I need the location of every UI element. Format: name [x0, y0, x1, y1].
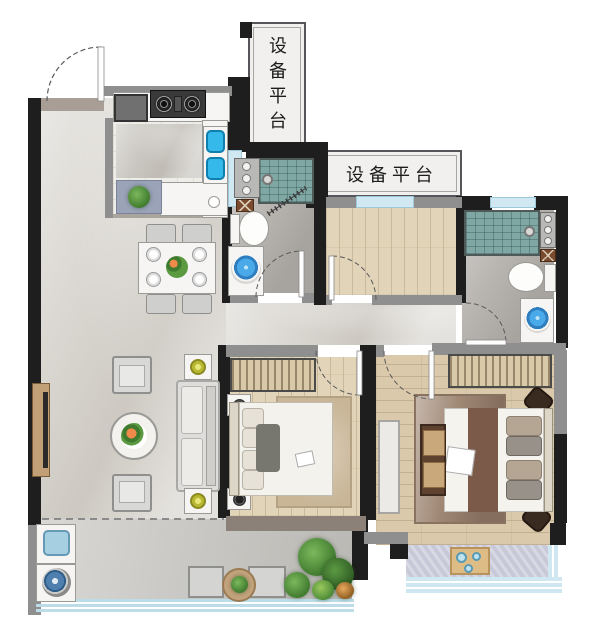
- bench-cushion: [423, 430, 445, 456]
- wall-bath-study: [314, 205, 326, 305]
- dining-centerpiece-flowers: [166, 256, 188, 278]
- bay-window-glass-side: [548, 545, 552, 577]
- balcony-plant: [312, 580, 334, 600]
- dinner-plate: [192, 272, 207, 287]
- master-wardrobe: [448, 354, 552, 388]
- wall-entry-threshold: [41, 98, 104, 111]
- bed-pillow: [242, 470, 264, 490]
- wall-bedroom-bottom: [226, 516, 366, 531]
- shelf-basket: [242, 174, 251, 183]
- entry-door-arc: [47, 47, 101, 101]
- balcony-plant: [284, 572, 310, 598]
- bedroom-wardrobe: [230, 358, 316, 392]
- dining-chair: [146, 224, 176, 244]
- sofa-back-cushions: [206, 386, 216, 486]
- wall-below-platform: [246, 142, 308, 158]
- master-floor-drain: [540, 249, 556, 262]
- floor-lamp: [190, 493, 206, 509]
- balcony-stool: [188, 566, 224, 598]
- master-bed-pillow: [506, 480, 542, 500]
- bench-cushion: [423, 462, 445, 488]
- wall-study-bottom-right: [372, 295, 462, 305]
- bed-throw-blanket: [256, 424, 280, 472]
- master-bathroom-window: [490, 197, 536, 208]
- bay-window-glass: [406, 577, 562, 581]
- dining-chair: [182, 294, 212, 314]
- wall-master-entry: [376, 345, 384, 357]
- washing-machine-door: [42, 568, 71, 597]
- wall-bay-right-corner: [550, 523, 566, 545]
- study-window: [356, 196, 414, 208]
- dresser: [378, 420, 400, 514]
- master-shower-head: [524, 226, 535, 237]
- teacup: [472, 552, 481, 561]
- stove-burner: [182, 94, 202, 114]
- dinner-plate: [192, 247, 207, 262]
- tv: [43, 392, 48, 468]
- sofa-seat-cushion: [181, 386, 203, 434]
- master-toilet-tank: [544, 264, 556, 292]
- dinner-plate: [146, 272, 161, 287]
- kitchen-plant: [128, 186, 150, 208]
- sofa-seat-cushion: [181, 438, 203, 486]
- teacup: [456, 552, 467, 563]
- shelf-basket: [544, 215, 552, 223]
- master-bed-pillow: [506, 416, 542, 436]
- toilet-bowl: [239, 211, 269, 246]
- coffee-table-flowers: [121, 423, 147, 449]
- bay-window-glass: [406, 589, 562, 593]
- floor-plan: 设备平台 设备平台: [0, 0, 600, 641]
- dinner-plate: [146, 247, 161, 262]
- stove-burner: [154, 94, 174, 114]
- wall-right-upper: [556, 196, 568, 348]
- kitchen-sink-basin: [206, 157, 225, 180]
- master-bed-headboard: [544, 408, 553, 512]
- teacup: [464, 564, 473, 573]
- wall-study-bottom-left: [326, 295, 332, 305]
- wall-right-window-band: [554, 350, 567, 434]
- kitchen-sink-basin: [206, 130, 225, 153]
- wall-bath-bottom-right: [302, 293, 314, 303]
- shower-head: [262, 174, 273, 185]
- kitchen-floor-mat: [116, 124, 204, 178]
- balcony-plant: [336, 582, 354, 599]
- balcony-railing-glass: [36, 609, 354, 612]
- master-bed-tray: [444, 446, 475, 476]
- master-bed-pillow: [506, 436, 542, 456]
- master-bed-pillow: [506, 460, 542, 480]
- bed-headboard: [229, 402, 239, 496]
- balcony-railing-glass: [36, 604, 354, 607]
- equipment-platform-right-label: 设备平台: [322, 150, 462, 197]
- table-plant: [231, 576, 248, 593]
- bay-window-glass-side: [554, 545, 558, 577]
- master-round-basin: [524, 306, 551, 333]
- floor-lamp: [190, 359, 206, 375]
- equipment-platform-top-label: 设备平台: [248, 28, 306, 144]
- kitchen-floor-drain: [208, 196, 220, 208]
- armchair-cushion: [119, 481, 145, 503]
- laundry-sink-basin: [43, 530, 70, 556]
- bay-window-glass: [406, 583, 562, 587]
- armchair-cushion: [119, 365, 145, 387]
- floor-drain: [236, 199, 254, 212]
- shelf-basket: [242, 186, 251, 195]
- wall-master-bottom-left: [364, 532, 408, 544]
- dining-chair: [182, 224, 212, 244]
- wall-bedroom-divider: [360, 345, 376, 520]
- fridge: [114, 94, 148, 122]
- shelf-basket: [544, 226, 552, 234]
- balcony-railing-glass: [36, 599, 354, 602]
- stove-control: [174, 96, 182, 112]
- wall-entry-kitchen: [105, 118, 113, 218]
- floor-hallway: [226, 303, 456, 345]
- floor-study: [326, 208, 456, 295]
- round-basin: [231, 254, 261, 284]
- wall-masterbath-top-left: [462, 196, 492, 210]
- shelf-basket: [242, 162, 251, 171]
- wall-right-lower: [554, 434, 567, 523]
- dining-chair: [146, 294, 176, 314]
- master-toilet-bowl: [508, 262, 544, 292]
- wall-bedroom-top: [226, 345, 318, 357]
- shelf-basket: [544, 237, 552, 245]
